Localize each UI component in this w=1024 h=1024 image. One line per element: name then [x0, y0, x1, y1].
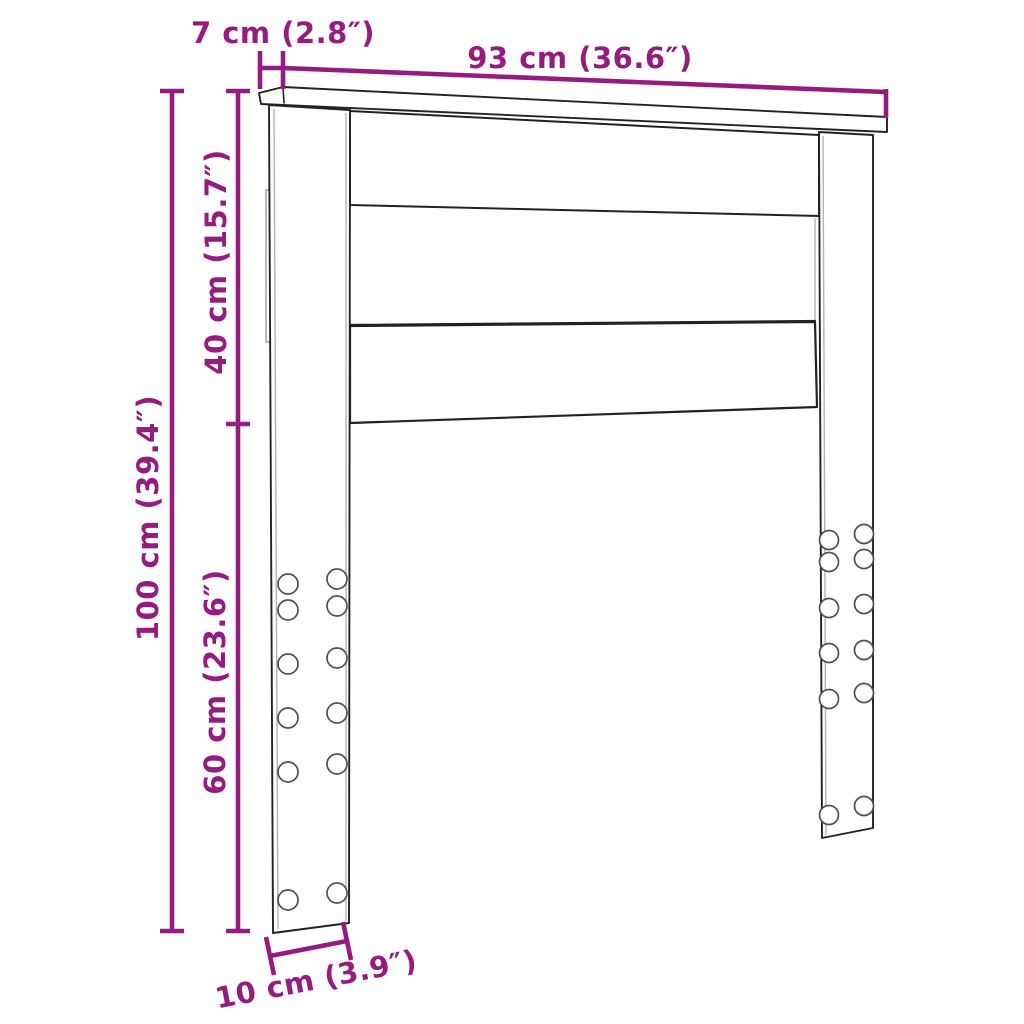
bolt-hole — [278, 890, 298, 910]
bolt-hole — [820, 599, 839, 618]
bolt-hole — [855, 797, 874, 816]
bolt-hole — [820, 644, 839, 663]
top-cap-left-corner — [283, 87, 284, 103]
dim-label-leg-height: 60 cm (23.6″) — [198, 569, 232, 794]
bolt-hole — [327, 883, 347, 903]
bolt-hole — [855, 550, 874, 569]
bolt-hole — [278, 708, 298, 728]
diagram-canvas: 7 cm (2.8″) 93 cm (36.6″) 40 cm (15.7″) … — [0, 0, 1024, 1024]
bolt-hole — [855, 641, 874, 660]
bolt-hole — [327, 754, 347, 774]
bolt-hole — [855, 525, 874, 544]
bolt-hole — [327, 596, 347, 616]
bolt-hole — [855, 595, 874, 614]
bolt-hole — [327, 648, 347, 668]
bolt-hole — [278, 762, 298, 782]
dim-label-leg-depth: 10 cm (3.9″) — [212, 943, 420, 1015]
headboard-drawing — [259, 87, 887, 933]
bolt-hole — [820, 690, 839, 709]
bolt-hole — [327, 569, 347, 589]
bolt-hole — [820, 531, 839, 550]
headboard-dimension-diagram: 7 cm (2.8″) 93 cm (36.6″) 40 cm (15.7″) … — [0, 0, 1024, 1024]
right-leg — [819, 132, 873, 838]
dim-label-panel-height: 40 cm (15.7″) — [199, 149, 233, 374]
slat-bottom — [350, 322, 817, 423]
bolt-hole — [278, 600, 298, 620]
bolt-hole — [327, 703, 347, 723]
dim-label-total-height: 100 cm (39.4″) — [131, 395, 165, 641]
bolt-hole — [855, 684, 874, 703]
bolt-hole — [820, 806, 839, 825]
bolt-hole — [278, 574, 298, 594]
left-leg — [269, 105, 350, 933]
bolt-hole — [820, 553, 839, 572]
dim-label-width: 93 cm (36.6″) — [467, 41, 692, 75]
dim-label-top-depth: 7 cm (2.8″) — [191, 16, 375, 50]
dim-line-leg-depth — [270, 941, 347, 956]
bolt-hole — [278, 654, 298, 674]
